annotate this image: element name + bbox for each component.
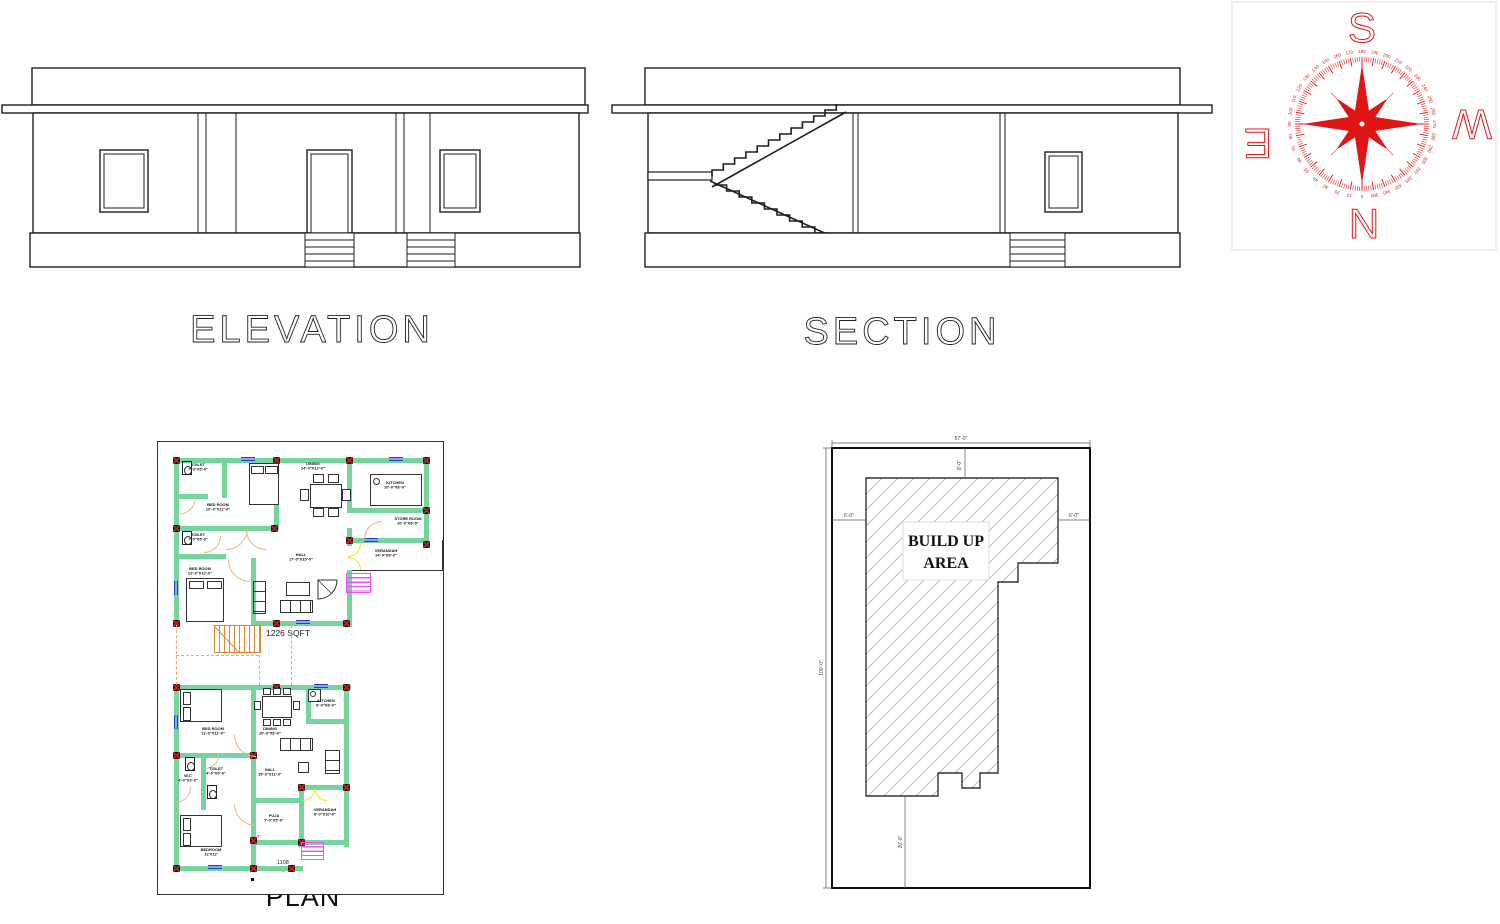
- room-label-text: 14'-0"X12'-0": [301, 467, 325, 472]
- bed-pillow: [207, 581, 223, 589]
- room-label-toilet2: TOILET7'-0"X5'-0": [188, 533, 208, 542]
- wall-segment: [251, 798, 301, 803]
- bed-pillow: [183, 818, 191, 831]
- window-marker: [241, 457, 255, 461]
- chair: [293, 701, 300, 710]
- window-marker: [296, 620, 310, 624]
- column-marker: [173, 865, 180, 872]
- room-label-hall2: HALL15'-0"X11'-0": [258, 768, 282, 777]
- elevation-window-right-inner: [444, 154, 476, 208]
- compass-letter-west: W: [1452, 101, 1492, 148]
- chair: [328, 474, 339, 483]
- wall-segment: [347, 508, 428, 513]
- bed: [180, 815, 222, 847]
- column-marker: [173, 525, 180, 532]
- room-label-text: 11'-0"X11'-0": [201, 732, 225, 737]
- room-label-text: 10'-0"X12'-0": [206, 508, 230, 513]
- wall-segment: [347, 538, 428, 543]
- door-swing: [234, 804, 256, 826]
- stair-landing: [648, 172, 712, 180]
- elevation-drawing: [2, 68, 588, 267]
- floor-plan: 1226 SQFT 1108 SQFT 2'-9" 6'-0" X 3'-0" …: [157, 441, 444, 895]
- section-drawing: [612, 68, 1212, 267]
- elevation-door-inner: [311, 154, 348, 233]
- room-label-text: 10'-0"X8'-0": [384, 486, 406, 491]
- bed: [249, 463, 279, 505]
- section-body: [648, 113, 1178, 233]
- bed: [180, 689, 222, 722]
- column-marker: [343, 620, 350, 627]
- window-marker: [208, 865, 222, 869]
- sofa: [280, 600, 313, 613]
- door-swing: [226, 528, 248, 550]
- bed-pillow: [265, 466, 278, 474]
- build-up-label-line1: BUILD UP: [908, 533, 984, 550]
- side-table: [298, 762, 309, 773]
- wall-segment: [344, 785, 349, 847]
- column-marker: [423, 507, 430, 514]
- room-label-text: 4'-0"X3'-0": [178, 779, 198, 784]
- area-label-upper: 1226 SQFT: [266, 628, 310, 638]
- door-swing: [315, 789, 327, 801]
- fan-chair: [316, 578, 340, 602]
- dim-bottom-inner: 20'-0": [898, 835, 904, 848]
- room-label-text: 14'-0"X8'-0": [375, 554, 397, 559]
- section-window-inner: [1049, 156, 1078, 208]
- entry-steps: [301, 842, 324, 860]
- sofa: [280, 738, 313, 751]
- door-swing: [303, 789, 315, 801]
- column-marker: [346, 537, 353, 544]
- room-label-bedroom4: BEDROOM12'X12': [201, 848, 222, 857]
- room-label-text: 7'-0"X5'-0": [264, 819, 284, 824]
- door-swing: [364, 521, 382, 539]
- chair: [313, 508, 324, 517]
- elevation-parapet: [32, 68, 585, 105]
- dim-top-inner: 8'-0": [957, 460, 963, 470]
- compass-letter-south: S: [1348, 4, 1376, 51]
- sink: [373, 478, 380, 485]
- dim-left-outer: 100'-0": [819, 660, 825, 676]
- column-marker: [250, 837, 257, 844]
- chair: [273, 719, 281, 726]
- room-label-verandah2: VERANDAH8'-0"X10'-0": [314, 808, 336, 817]
- chair: [254, 701, 261, 710]
- site-plan: BUILD UP AREA 57'-0" 8'-0" 6'-0" 6'-0" 1…: [819, 436, 1090, 888]
- toilet-bowl: [209, 790, 217, 799]
- window-marker: [389, 457, 403, 461]
- elevation-window-left-inner: [104, 154, 144, 208]
- coffee-table: [286, 582, 310, 596]
- bed-pillow: [251, 466, 264, 474]
- room-label-bedroom2: BED ROOM12'-0"X12'-0": [188, 567, 212, 576]
- toilet-fixture: [207, 785, 217, 799]
- column-marker: [250, 865, 257, 872]
- room-label-text: 6'-0"X8'-0": [316, 704, 336, 709]
- section-plinth: [645, 233, 1180, 267]
- room-label-dining1: DINING14'-0"X12'-0": [301, 462, 325, 471]
- room-label-verandah1: VERANDAH14'-0"X8'-0": [375, 549, 397, 558]
- room-label-toilet1: TOILET7'-0"X5'-0": [188, 463, 208, 472]
- room-label-puja: PUJA7'-0"X5'-0": [264, 814, 284, 823]
- sink: [310, 691, 316, 697]
- column-marker: [343, 684, 350, 691]
- chair: [328, 508, 339, 517]
- column-marker: [343, 784, 350, 791]
- bed-pillow: [183, 833, 191, 846]
- wall-segment: [174, 554, 226, 559]
- room-label-bedroom3: BED ROOM11'-0"X11'-0": [201, 727, 225, 736]
- bed: [186, 578, 224, 622]
- compass-rose: 0102030405060708090100110120130140150160…: [1232, 2, 1496, 250]
- window-marker: [314, 684, 328, 688]
- elevation-roof-slab: [2, 105, 588, 113]
- toilet-fixture: [185, 757, 195, 771]
- column-marker: [271, 525, 278, 532]
- bed-pillow: [183, 692, 191, 706]
- wall-segment: [306, 719, 348, 724]
- wall-segment: [424, 458, 429, 548]
- section-roof-slab: [612, 105, 1212, 113]
- chair: [283, 719, 291, 726]
- door-swing: [246, 530, 266, 550]
- room-label-text: 17'-0"X15'-0": [289, 558, 313, 563]
- wall-segment: [347, 458, 352, 512]
- room-label-store: STORE ROOM10'-0"X5'-0": [395, 517, 422, 526]
- window-marker: [174, 715, 178, 729]
- section-title: SECTION: [804, 311, 1001, 353]
- compass-degree-label: 0: [1360, 194, 1363, 199]
- column-marker: [346, 457, 353, 464]
- chair: [263, 719, 271, 726]
- room-label-wc: W.C4'-0"X3'-0": [178, 774, 198, 783]
- dim-top: 57'-0": [955, 436, 968, 442]
- plan-dot: [251, 878, 254, 881]
- compass-degree-label: 90: [1287, 121, 1292, 127]
- wall-segment: [344, 685, 349, 789]
- wall-segment: [251, 840, 301, 845]
- entry-steps: [346, 573, 371, 593]
- compass-letter-north: N: [1349, 200, 1379, 247]
- room-label-kitchen2: KITCHEN6'-0"X8'-0": [316, 699, 336, 708]
- room-label-kitchen1: KITCHEN10'-0"X8'-0": [384, 481, 406, 490]
- stair-dashed-line: [176, 655, 259, 656]
- door-swing: [175, 787, 191, 803]
- compass-letter-east: E: [1244, 120, 1272, 167]
- room-label-text: 4'-0"X6'-0": [206, 772, 226, 777]
- dining-table: [310, 484, 342, 508]
- chair: [313, 474, 324, 483]
- chair: [283, 688, 291, 695]
- room-label-text: 10'-0"X8'-0": [259, 732, 281, 737]
- chair: [342, 489, 351, 501]
- sofa: [253, 581, 266, 614]
- chair: [300, 489, 309, 501]
- room-label-hall1: HALL17'-0"X15'-0": [289, 553, 313, 562]
- room-label-toilet3: TOILET4'-0"X6'-0": [206, 767, 226, 776]
- section-parapet: [645, 68, 1180, 105]
- door-swing: [228, 560, 250, 582]
- room-label-text: 8'-0"X10'-0": [314, 813, 336, 818]
- door-swing: [178, 497, 196, 515]
- room-label-bedroom1: BED ROOM10'-0"X12'-0": [206, 503, 230, 512]
- dim-left-side: 6'-0": [844, 513, 854, 519]
- room-label-text: 7'-0"X5'-0": [188, 468, 208, 473]
- drawing-sheet: ELEVATION SECTION 0102030405: [0, 0, 1500, 924]
- bed-pillow: [183, 707, 191, 721]
- wall-segment: [222, 458, 227, 498]
- chair: [263, 688, 271, 695]
- column-marker: [173, 457, 180, 464]
- sofa: [325, 750, 340, 774]
- plan-staircase: [214, 625, 261, 653]
- stair-dashed-line: [291, 625, 292, 685]
- room-label-text: 7'-0"X5'-0": [188, 538, 208, 543]
- room-label-text: 15'-0"X11'-0": [258, 773, 282, 778]
- column-marker: [173, 752, 180, 759]
- room-label-text: 10'-0"X5'-0": [395, 522, 422, 527]
- chair: [273, 688, 281, 695]
- stair-dashed-line: [259, 655, 260, 685]
- window-marker: [174, 581, 178, 595]
- bed-pillow: [189, 581, 205, 589]
- column-marker: [288, 865, 295, 872]
- room-label-text: 12'-0"X12'-0": [188, 572, 212, 577]
- column-marker: [423, 541, 430, 548]
- build-up-label-line2: AREA: [923, 555, 969, 572]
- toilet-bowl: [187, 762, 195, 771]
- compass-degree-label: 270: [1432, 120, 1437, 128]
- wall-segment: [174, 458, 179, 625]
- wall-segment: [174, 866, 303, 871]
- room-label-dining2: DINING10'-0"X8'-0": [259, 727, 281, 736]
- section-steps: [1010, 233, 1065, 267]
- dim-right-side: 6'-0": [1069, 513, 1079, 519]
- column-marker: [273, 620, 280, 627]
- dining-table: [262, 696, 292, 718]
- room-label-text: 12'X12': [201, 853, 222, 858]
- column-marker: [423, 457, 430, 464]
- elevation-title: ELEVATION: [190, 309, 434, 351]
